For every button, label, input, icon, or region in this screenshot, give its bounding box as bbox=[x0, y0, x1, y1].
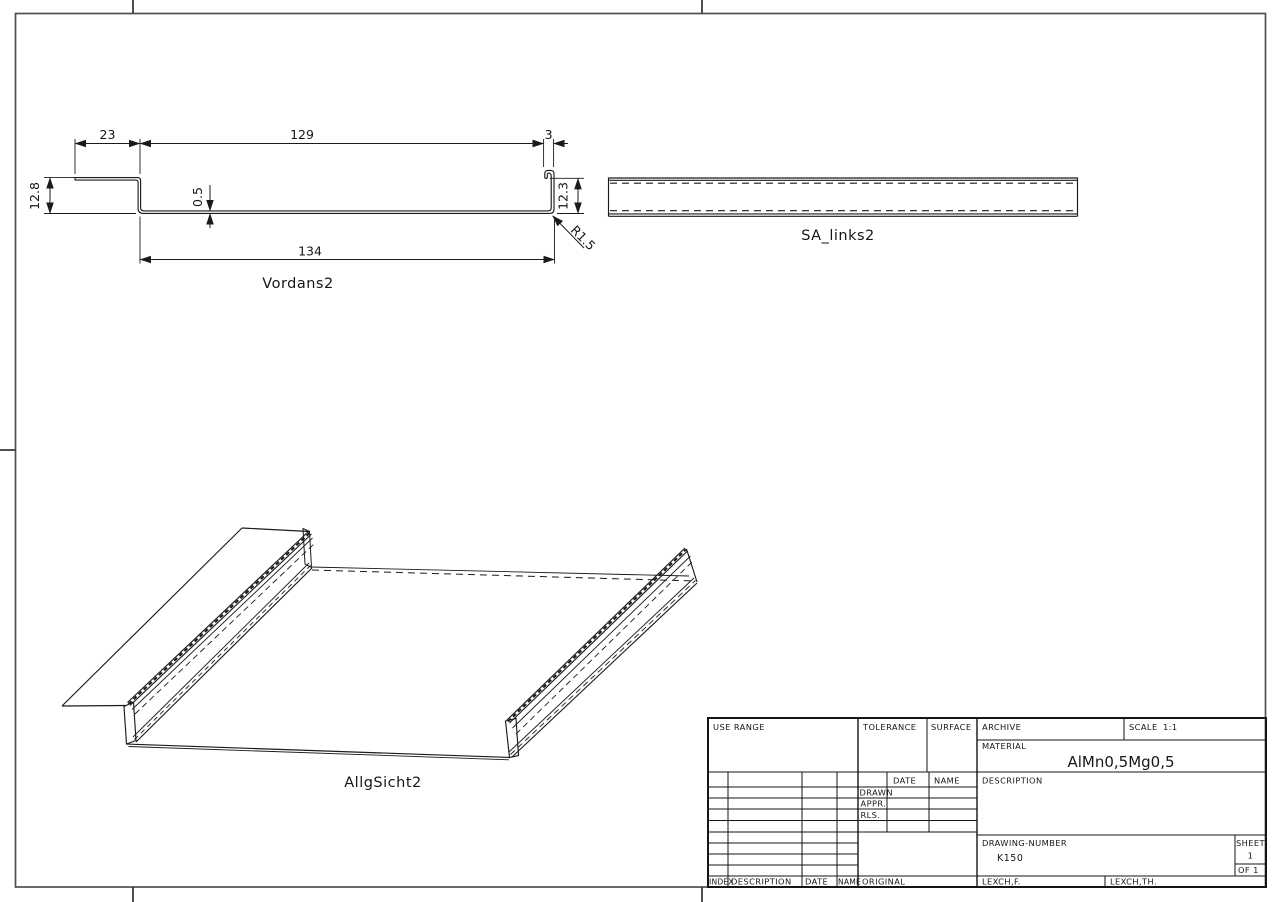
dimension-texts: 23 129 3 134 12.8 0.5 12.3 R1.5 bbox=[27, 127, 599, 259]
dim-23: 23 bbox=[100, 127, 116, 142]
title-block: USE RANGE TOLERANCE SURFACE ARCHIVE SCAL… bbox=[708, 718, 1266, 887]
side-view-bend-lines bbox=[610, 183, 1076, 211]
original-col-label: ORIGINAL bbox=[862, 877, 905, 887]
material-label: MATERIAL bbox=[982, 741, 1026, 751]
sheet-of-value: OF 1 bbox=[1238, 865, 1259, 875]
appr-label: APPR. bbox=[861, 799, 887, 809]
drawing-canvas: 23 129 3 134 12.8 0.5 12.3 R1.5 Vordans2 bbox=[0, 0, 1280, 902]
drawing-sheet: 23 129 3 134 12.8 0.5 12.3 R1.5 Vordans2 bbox=[0, 0, 1280, 902]
lexch-th-label: LEXCH,TH. bbox=[1110, 877, 1157, 887]
surface-label: SURFACE bbox=[931, 722, 971, 732]
front-view-profile bbox=[75, 170, 554, 213]
material-value: AlMn0,5Mg0,5 bbox=[1067, 753, 1174, 771]
dim-12-3: 12.3 bbox=[556, 182, 571, 210]
dim-134: 134 bbox=[298, 244, 322, 259]
use-range-label: USE RANGE bbox=[713, 722, 765, 732]
side-view: SA_links2 bbox=[609, 178, 1078, 245]
iso-view: AllgSicht2 bbox=[62, 528, 697, 791]
tolerance-label: TOLERANCE bbox=[862, 722, 916, 732]
front-view-dimensions: 23 129 3 134 12.8 0.5 12.3 R1.5 bbox=[27, 127, 599, 264]
date-header: DATE bbox=[893, 776, 916, 786]
front-view: 23 129 3 134 12.8 0.5 12.3 R1.5 Vordans2 bbox=[27, 127, 599, 292]
sheet-value: 1 bbox=[1248, 851, 1254, 861]
dim-12-8: 12.8 bbox=[27, 182, 42, 210]
rls-label: RLS. bbox=[861, 810, 881, 820]
name-col-label: NAME bbox=[838, 878, 861, 887]
dim-radius: R1.5 bbox=[568, 222, 599, 253]
dim-129: 129 bbox=[290, 127, 314, 142]
dim-3: 3 bbox=[545, 127, 553, 142]
dimension-lines bbox=[50, 144, 584, 260]
iso-view-label: AllgSicht2 bbox=[344, 775, 422, 791]
iso-left-rib bbox=[124, 529, 315, 745]
side-view-label: SA_links2 bbox=[801, 228, 875, 244]
scale-value: 1:1 bbox=[1163, 722, 1178, 732]
front-view-label: Vordans2 bbox=[262, 276, 333, 292]
lexch-f-label: LEXCH,F. bbox=[982, 877, 1021, 887]
iso-left-flange bbox=[62, 528, 309, 706]
scale-label: SCALE bbox=[1129, 722, 1158, 732]
drawing-number-value: K150 bbox=[997, 853, 1023, 864]
iso-right-wall bbox=[506, 548, 698, 758]
name-header: NAME bbox=[934, 776, 960, 786]
archive-label: ARCHIVE bbox=[982, 722, 1021, 732]
date-col-label: DATE bbox=[805, 877, 828, 887]
sheet-label: SHEET bbox=[1236, 838, 1266, 848]
dim-0-5: 0.5 bbox=[190, 187, 205, 207]
description-col-label: DESCRIPTION bbox=[731, 877, 792, 887]
drawing-number-label: DRAWING-NUMBER bbox=[982, 838, 1067, 848]
drawn-label: DRAWN bbox=[860, 788, 893, 798]
description-label: DESCRIPTION bbox=[982, 776, 1043, 786]
title-block-texts: USE RANGE TOLERANCE SURFACE ARCHIVE SCAL… bbox=[709, 722, 1266, 887]
